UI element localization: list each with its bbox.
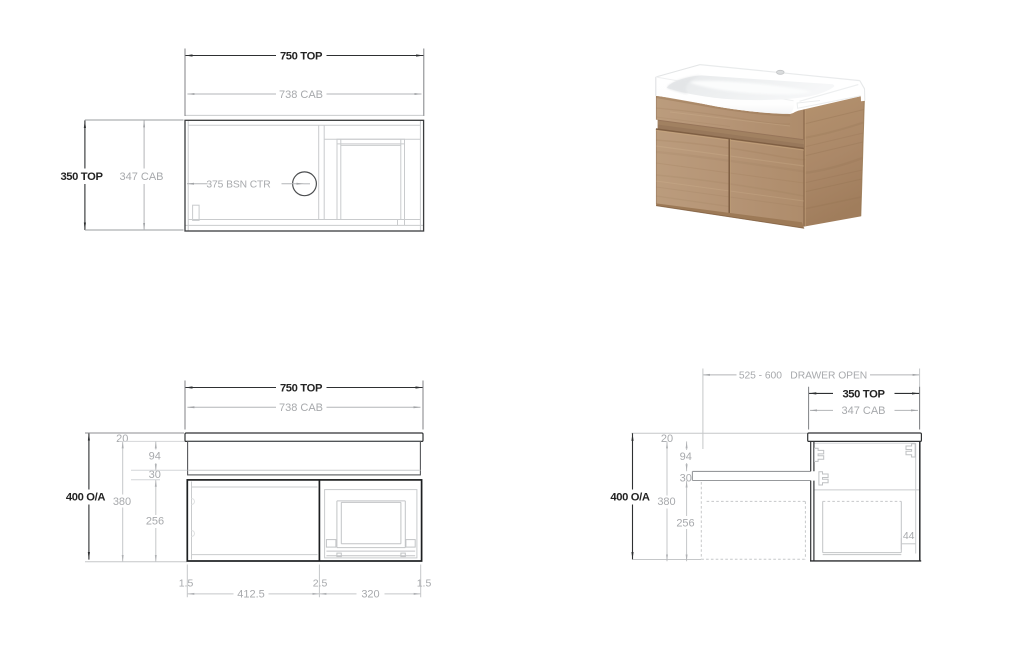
svg-text:320: 320 (361, 589, 379, 601)
svg-text:400 O/A: 400 O/A (610, 492, 649, 504)
svg-text:738 CAB: 738 CAB (279, 89, 323, 101)
svg-text:400 O/A: 400 O/A (66, 492, 105, 504)
svg-text:44: 44 (903, 530, 915, 542)
svg-text:30: 30 (149, 469, 161, 481)
svg-text:412.5: 412.5 (237, 589, 265, 601)
svg-text:350 TOP: 350 TOP (60, 171, 103, 183)
svg-text:94: 94 (680, 451, 692, 463)
svg-text:750 TOP: 750 TOP (280, 383, 323, 395)
svg-text:380: 380 (657, 496, 675, 508)
svg-text:94: 94 (149, 451, 161, 463)
svg-text:347 CAB: 347 CAB (119, 171, 163, 183)
svg-text:1.5: 1.5 (179, 578, 194, 590)
svg-text:738 CAB: 738 CAB (279, 402, 323, 414)
svg-text:525 - 600 DRAWER OPEN: 525 - 600 DRAWER OPEN (739, 371, 867, 382)
svg-text:750 TOP: 750 TOP (280, 51, 323, 63)
svg-text:347 CAB: 347 CAB (841, 405, 885, 417)
svg-text:350 TOP: 350 TOP (842, 389, 885, 401)
svg-text:1.5: 1.5 (417, 578, 432, 590)
svg-text:380: 380 (113, 496, 131, 508)
svg-text:256: 256 (676, 518, 694, 530)
svg-text:375 BSN CTR: 375 BSN CTR (206, 179, 270, 190)
svg-text:256: 256 (146, 516, 164, 528)
svg-text:30: 30 (680, 472, 692, 484)
svg-text:2.5: 2.5 (313, 578, 328, 590)
